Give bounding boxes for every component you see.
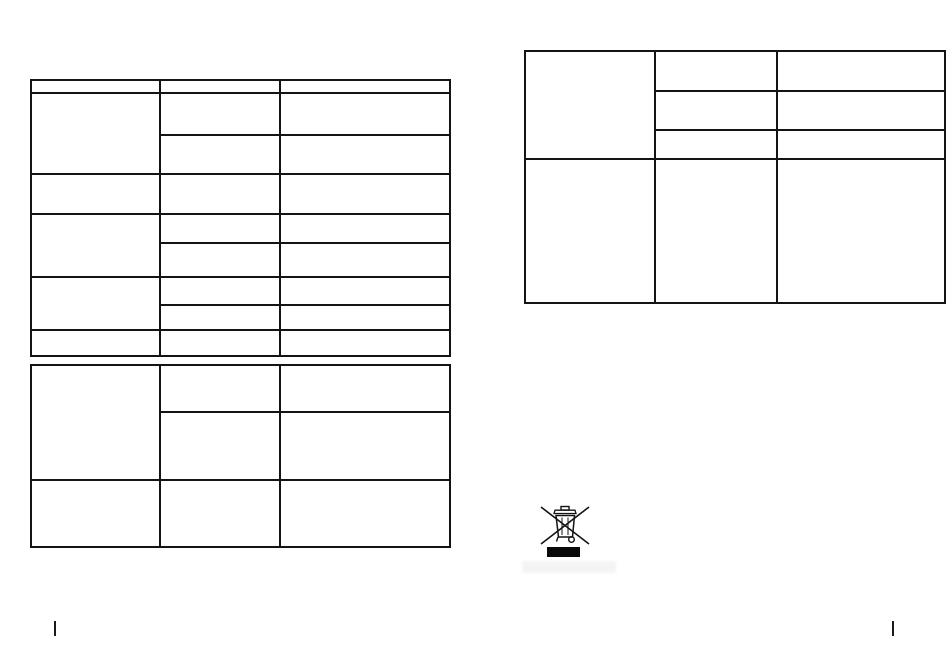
weee-black-bar: [547, 547, 580, 557]
table-cell: [31, 365, 160, 480]
table-cell: [280, 412, 450, 480]
table-cell: [280, 277, 450, 305]
table-cell: [280, 330, 450, 356]
table-row: [31, 330, 450, 356]
table-cell: [280, 305, 450, 330]
table-cell: [655, 51, 777, 91]
table-cell: [160, 174, 280, 214]
table-cell: [31, 330, 160, 356]
table-row: [525, 51, 945, 91]
table-cell: [280, 214, 450, 243]
table-cell: [160, 480, 280, 547]
table-cell: [525, 159, 655, 303]
table-cell: [280, 174, 450, 214]
table-cell: [160, 412, 280, 480]
table-cell: [777, 51, 945, 91]
table-row: [31, 365, 450, 412]
table-cell: [160, 135, 280, 174]
table-cell: [280, 80, 450, 93]
table-row: [31, 214, 450, 243]
table-cell: [31, 80, 160, 93]
table-cell: [31, 480, 160, 547]
table-cell: [280, 243, 450, 277]
table-cell: [655, 91, 777, 130]
table-row: [31, 277, 450, 305]
table-cell: [160, 305, 280, 330]
table-cell: [160, 80, 280, 93]
table-cell: [777, 130, 945, 159]
faint-print-smudge: [522, 561, 616, 573]
table-row: [525, 159, 945, 303]
left-top-table: [30, 79, 451, 357]
table-row: [31, 93, 450, 135]
table-cell: [31, 214, 160, 277]
table-cell: [160, 214, 280, 243]
table-cell: [777, 91, 945, 130]
table-cell: [160, 93, 280, 135]
table-row: [31, 174, 450, 214]
table-cell: [31, 277, 160, 330]
right-table: [524, 50, 946, 304]
table-cell: [160, 243, 280, 277]
right-fold-mark-icon: [892, 621, 894, 636]
table-cell: [280, 480, 450, 547]
table-row: [31, 80, 450, 93]
table-cell: [160, 277, 280, 305]
table-cell: [280, 93, 450, 135]
table-cell: [280, 135, 450, 174]
table-row: [31, 480, 450, 547]
table-cell: [280, 365, 450, 412]
scanned-document-page: [0, 0, 950, 662]
left-fold-mark-icon: [54, 621, 56, 636]
left-bottom-table: [30, 364, 451, 548]
table-cell: [31, 174, 160, 214]
crossed-out-wheeled-bin-icon: [540, 504, 590, 546]
table-cell: [160, 365, 280, 412]
table-cell: [655, 130, 777, 159]
table-cell: [525, 51, 655, 159]
table-cell: [777, 159, 945, 303]
table-cell: [31, 93, 160, 174]
table-cell: [655, 159, 777, 303]
table-cell: [160, 330, 280, 356]
